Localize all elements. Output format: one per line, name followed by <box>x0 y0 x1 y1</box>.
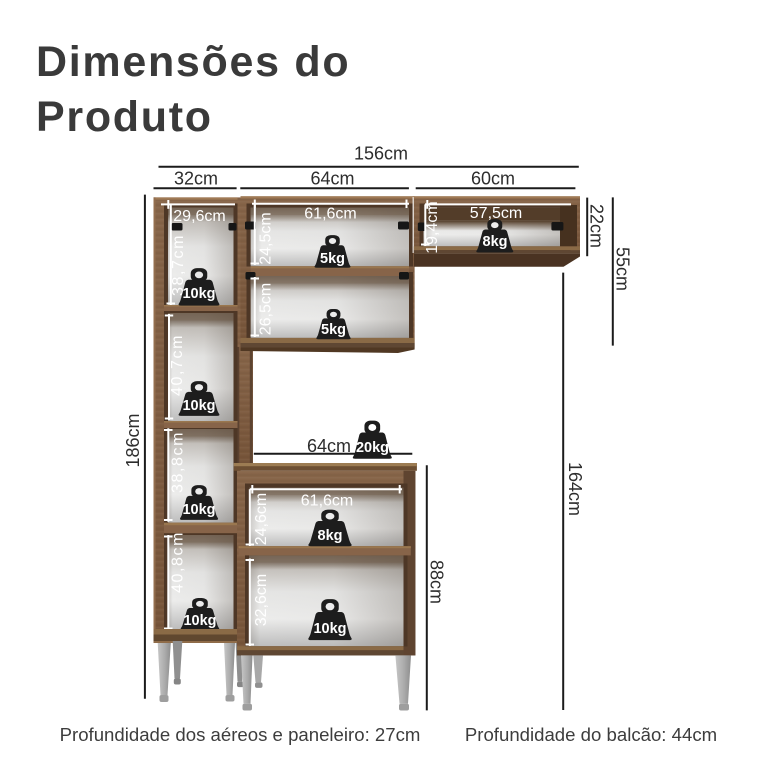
svg-text:24,6cm: 24,6cm <box>253 493 270 545</box>
svg-text:10kg: 10kg <box>313 621 346 637</box>
svg-text:29,6cm: 29,6cm <box>173 208 225 225</box>
svg-text:Produto: Produto <box>36 93 213 141</box>
svg-text:40,8cm: 40,8cm <box>170 531 187 593</box>
svg-text:10kg: 10kg <box>182 398 215 414</box>
svg-text:40,7cm: 40,7cm <box>169 334 186 396</box>
svg-text:24,5cm: 24,5cm <box>258 212 275 264</box>
svg-text:32cm: 32cm <box>174 169 218 189</box>
svg-text:10kg: 10kg <box>182 502 215 518</box>
svg-text:10kg: 10kg <box>182 286 215 302</box>
svg-text:64cm: 64cm <box>310 169 354 189</box>
svg-text:61,6cm: 61,6cm <box>301 493 353 510</box>
svg-text:26,5cm: 26,5cm <box>258 283 275 335</box>
svg-text:156cm: 156cm <box>354 144 408 164</box>
svg-text:20kg: 20kg <box>356 440 389 456</box>
svg-text:61,6cm: 61,6cm <box>304 206 356 223</box>
svg-text:8kg: 8kg <box>483 234 508 250</box>
svg-text:164cm: 164cm <box>565 462 585 516</box>
svg-text:88cm: 88cm <box>427 560 447 604</box>
svg-text:8kg: 8kg <box>318 528 343 544</box>
svg-text:64cm: 64cm <box>307 436 351 456</box>
svg-text:55cm: 55cm <box>613 247 633 291</box>
svg-text:Profundidade dos aéreos e pane: Profundidade dos aéreos e paneleiro: 27c… <box>60 724 421 745</box>
svg-text:22cm: 22cm <box>587 204 607 248</box>
svg-text:Dimensões do: Dimensões do <box>36 38 350 86</box>
svg-text:186cm: 186cm <box>123 413 143 467</box>
svg-text:60cm: 60cm <box>471 169 515 189</box>
svg-text:5kg: 5kg <box>320 251 345 267</box>
svg-text:19,4cm: 19,4cm <box>424 201 441 253</box>
svg-text:10kg: 10kg <box>183 613 216 629</box>
svg-text:38,8cm: 38,8cm <box>170 431 187 493</box>
svg-text:5kg: 5kg <box>321 322 346 338</box>
svg-text:32,6cm: 32,6cm <box>253 574 270 626</box>
svg-text:Profundidade do balcão: 44cm: Profundidade do balcão: 44cm <box>465 724 717 745</box>
